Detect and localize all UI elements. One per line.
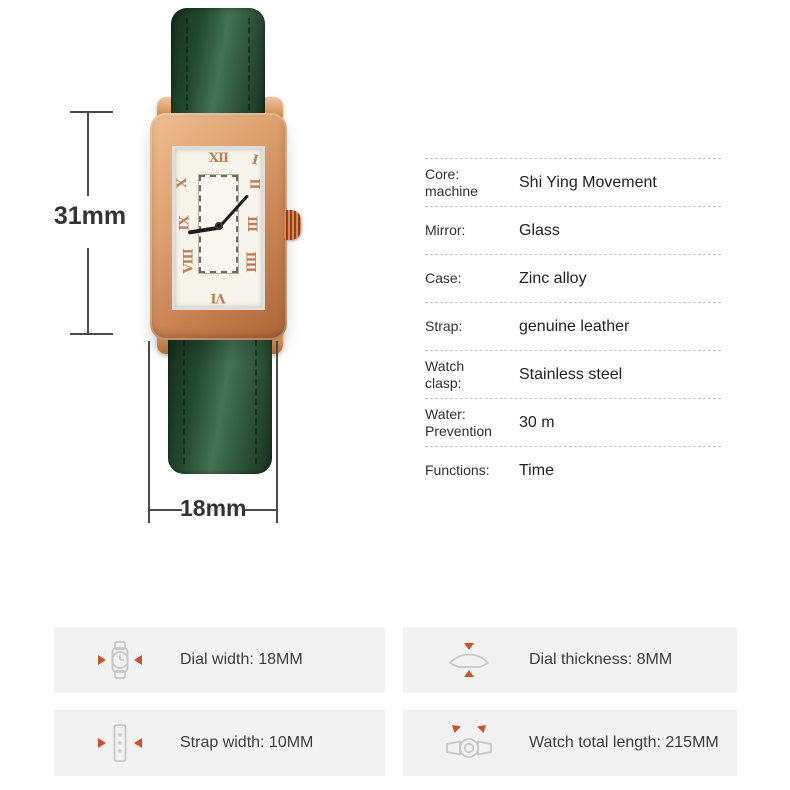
feature-card-dial-width: Dial width: 18MM xyxy=(54,627,385,693)
dimension-extension-line xyxy=(148,341,150,523)
dial-numeral-8: VIII xyxy=(183,249,196,273)
dimension-line xyxy=(150,509,182,511)
spec-value: Stainless steel xyxy=(519,366,622,384)
spec-label: Water: Prevention xyxy=(425,406,519,440)
dimension-line xyxy=(87,248,89,334)
dimension-line xyxy=(87,112,89,196)
dimension-width-label: 18mm xyxy=(180,495,246,522)
strap-stitch xyxy=(183,340,185,464)
spec-row-functions: Functions: Time xyxy=(425,447,721,494)
watch-total-length-icon xyxy=(445,721,493,765)
spec-label: Core: machine xyxy=(425,166,519,200)
dial-numeral-3: III xyxy=(245,216,258,231)
dial-numeral-2: II xyxy=(247,178,260,188)
strap-stitch xyxy=(255,340,257,464)
product-spec-infographic: XII I II III IIII VI VIII IX X 31mm xyxy=(0,0,790,790)
dimension-line xyxy=(244,509,276,511)
dial-numeral-6: VI xyxy=(175,291,262,304)
spec-value: Time xyxy=(519,462,554,480)
feature-label: Dial width: 18MM xyxy=(180,651,303,669)
dial-thickness-icon xyxy=(445,638,493,682)
watch-strap-bottom xyxy=(168,330,272,474)
spec-label: Case: xyxy=(425,270,519,287)
feature-card-dial-thickness: Dial thickness: 8MM xyxy=(403,627,737,693)
spec-row-water: Water: Prevention 30 m xyxy=(425,399,721,447)
watch-strap-top xyxy=(171,8,265,120)
feature-label: Dial thickness: 8MM xyxy=(529,651,672,669)
spec-value: Zinc alloy xyxy=(519,270,587,288)
feature-grid: Dial width: 18MM Dial thickness: 8MM Str… xyxy=(54,627,737,776)
strap-width-icon xyxy=(96,721,144,765)
spec-row-case: Case: Zinc alloy xyxy=(425,255,721,303)
hands-center-pin xyxy=(215,222,223,230)
spec-table: Core: machine Shi Ying Movement Mirror: … xyxy=(425,158,721,494)
spec-row-clasp: Watch clasp: Stainless steel xyxy=(425,351,721,399)
watch-crown xyxy=(284,210,301,240)
spec-value: genuine leather xyxy=(519,318,629,336)
spec-value: 30 m xyxy=(519,414,555,432)
dial-width-icon xyxy=(96,638,144,682)
strap-stitch xyxy=(248,18,250,110)
watch-product-image: XII I II III IIII VI VIII IX X xyxy=(0,0,420,560)
spec-row-core: Core: machine Shi Ying Movement xyxy=(425,159,721,207)
dimension-height-label: 31mm xyxy=(50,202,130,231)
dimension-extension-line xyxy=(276,341,278,523)
feature-label: Watch total length: 215MM xyxy=(529,734,719,752)
spec-label: Strap: xyxy=(425,318,519,335)
spec-value: Shi Ying Movement xyxy=(519,174,657,192)
feature-card-strap-width: Strap width: 10MM xyxy=(54,710,385,776)
dial-numeral-4: IIII xyxy=(243,251,256,271)
spec-label: Functions: xyxy=(425,462,519,479)
spec-label: Mirror: xyxy=(425,222,519,239)
dial-numeral-12: XII xyxy=(175,152,262,165)
dimension-tick xyxy=(70,111,113,113)
spec-value: Glass xyxy=(519,222,560,240)
dial-numeral-9: IX xyxy=(179,216,192,230)
feature-label: Strap width: 10MM xyxy=(180,734,313,752)
spec-row-strap: Strap: genuine leather xyxy=(425,303,721,351)
feature-card-total-length: Watch total length: 215MM xyxy=(403,710,737,776)
spec-label: Watch clasp: xyxy=(425,358,519,392)
strap-stitch xyxy=(186,18,188,110)
dial-numeral-10: X xyxy=(176,179,189,188)
dimension-tick xyxy=(70,333,113,335)
spec-row-mirror: Mirror: Glass xyxy=(425,207,721,255)
